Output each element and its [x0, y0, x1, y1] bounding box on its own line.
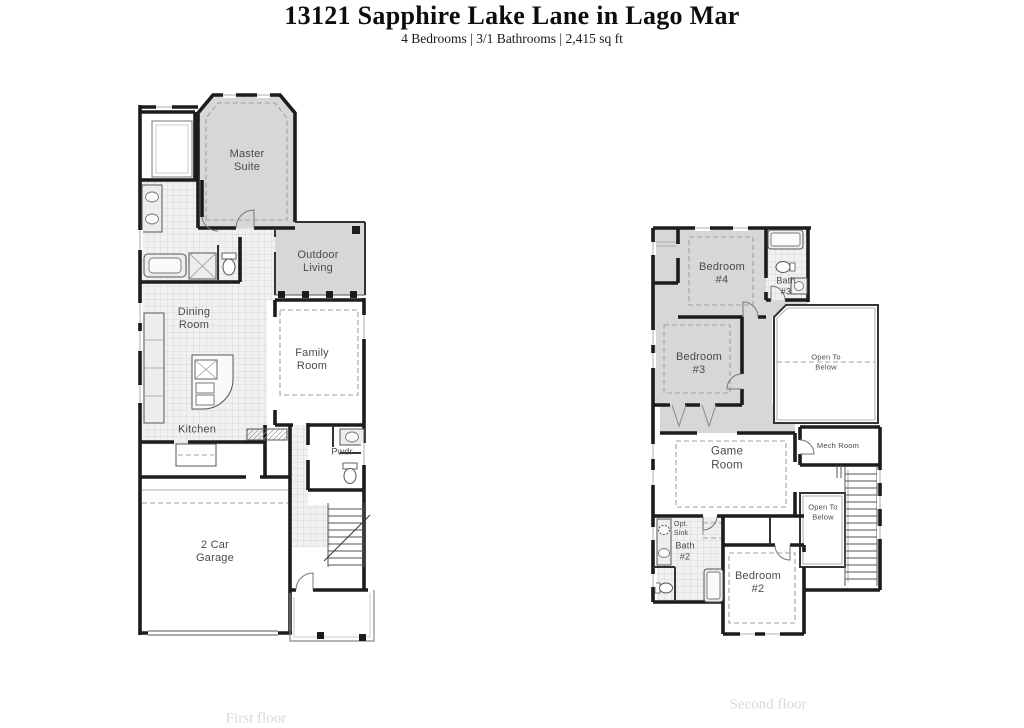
- room-label-kitchen: Kitchen: [178, 424, 216, 437]
- porch: [290, 590, 374, 641]
- room-label-bedroom-3: Bedroom #3: [676, 351, 722, 377]
- stairs: [845, 467, 877, 586]
- room-label-family-room: Family Room: [295, 347, 329, 373]
- room-label-mech-room: Mech Room: [817, 441, 859, 451]
- page-subtitle: 4 Bedrooms | 3/1 Bathrooms | 2,415 sq ft: [0, 31, 1024, 47]
- room-label-garage: 2 Car Garage: [196, 539, 234, 565]
- room-label-bath-2: Bath #2: [675, 540, 694, 561]
- floor-plan-page: 13121 Sapphire Lake Lane in Lago Mar 4 B…: [0, 0, 1024, 725]
- room-label-open-to-below-lower: Open To Below: [808, 502, 838, 522]
- room-label-bedroom-2: Bedroom #2: [735, 570, 781, 596]
- room-label-dining-room: Dining Room: [178, 306, 210, 332]
- room-label-bedroom-4: Bedroom #4: [699, 261, 745, 287]
- page-title: 13121 Sapphire Lake Lane in Lago Mar: [0, 1, 1024, 31]
- room-label-open-to-below-upper: Open To Below: [811, 352, 841, 372]
- room-label-bath-3: Bath #3: [776, 275, 795, 296]
- open-to-below-railings: [774, 305, 878, 567]
- room-label-game-room: Game Room: [711, 445, 743, 472]
- closet-shelving: [152, 121, 192, 177]
- room-label-powder: Pwdr: [331, 447, 352, 458]
- room-label-outdoor-living: Outdoor Living: [297, 249, 338, 275]
- room-label-opt-sink: Opt. Sink: [674, 520, 688, 538]
- garage-door: [148, 629, 278, 637]
- room-label-master-suite: Master Suite: [230, 148, 265, 174]
- second-floor-caption: Second floor: [729, 697, 806, 714]
